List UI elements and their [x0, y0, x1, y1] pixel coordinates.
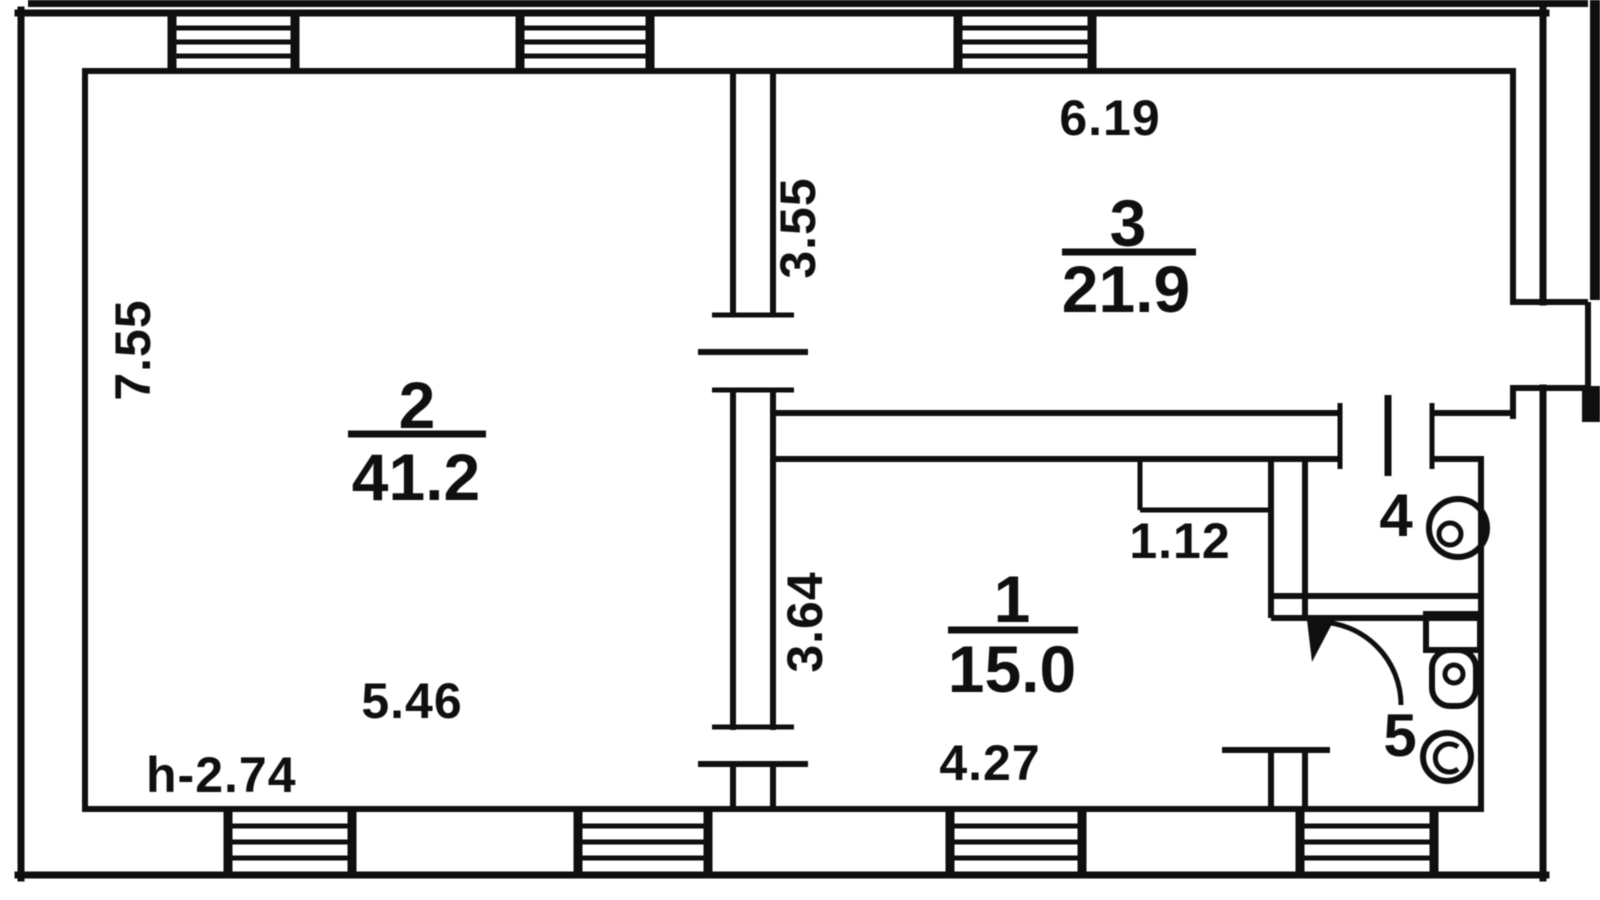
room2-labels: 2 41.2 7.55 5.46 h-2.74 — [105, 299, 486, 803]
window-top-1 — [172, 12, 295, 72]
window-top-2 — [520, 12, 650, 72]
floor-plan-scan: 2 41.2 7.55 5.46 h-2.74 3 21.9 6.19 3.55… — [0, 0, 1600, 900]
room1-notch-dim: 1.12 — [1129, 513, 1230, 569]
window-bottom-2 — [578, 808, 708, 876]
room1-width-dim: 4.27 — [939, 735, 1040, 791]
room1-notch-wall — [1140, 459, 1271, 510]
room2-height-dim: 7.55 — [105, 299, 161, 400]
room1-area-label: 15.0 — [948, 632, 1076, 706]
right-wall-recess — [1513, 302, 1588, 388]
room3-area-label: 21.9 — [1062, 252, 1190, 326]
room5-basin — [1423, 733, 1471, 781]
room2-width-dim: 5.46 — [361, 673, 462, 729]
room5-toilet — [1426, 614, 1480, 706]
room3-labels: 3 21.9 6.19 3.55 — [770, 90, 1196, 326]
window-bottom-4 — [1300, 808, 1434, 876]
room4-number-label: 4 — [1379, 482, 1413, 549]
room2-area-label: 41.2 — [352, 440, 480, 514]
room3-height-dim: 3.55 — [770, 177, 826, 278]
window-top-3 — [958, 12, 1092, 72]
ceiling-height-label: h-2.74 — [146, 747, 297, 803]
door-arc — [1318, 622, 1401, 705]
door-hinge-icon — [1307, 620, 1334, 662]
room1-labels: 1 15.0 3.64 4.27 1.12 — [777, 513, 1231, 791]
floor-plan-svg: 2 41.2 7.55 5.46 h-2.74 3 21.9 6.19 3.55… — [0, 0, 1600, 900]
room3-width-dim: 6.19 — [1059, 90, 1160, 146]
window-bottom-3 — [950, 808, 1082, 876]
room5-door — [1307, 620, 1401, 705]
room1-number-label: 1 — [994, 562, 1031, 636]
room3-bottom-wall — [773, 395, 1513, 476]
room5-number-label: 5 — [1383, 702, 1416, 769]
room1-height-dim: 3.64 — [777, 571, 833, 672]
window-bottom-1 — [228, 808, 352, 876]
